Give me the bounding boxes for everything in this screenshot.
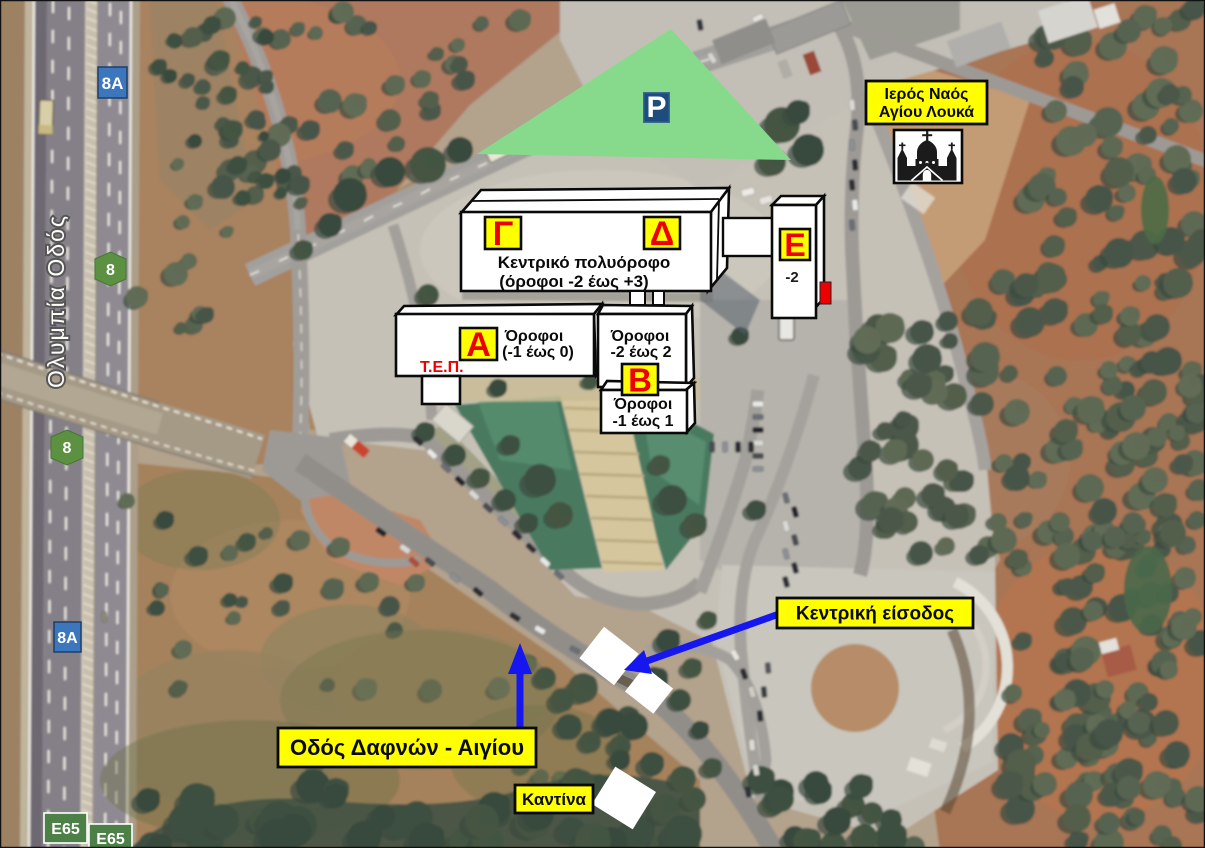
svg-text:P: P [646, 91, 666, 124]
svg-text:Κεντρική είσοδος: Κεντρική είσοδος [796, 604, 954, 625]
svg-text:8A: 8A [102, 74, 124, 93]
svg-text:Οδός Δαφνών - Αιγίου: Οδός Δαφνών - Αιγίου [290, 735, 524, 760]
svg-text:Τ.Ε.Π.: Τ.Ε.Π. [420, 359, 464, 376]
svg-text:-2 έως 2: -2 έως 2 [610, 344, 671, 361]
svg-text:-2: -2 [785, 269, 798, 286]
svg-text:-1 έως 1: -1 έως 1 [612, 413, 673, 430]
svg-text:Ολυμπία Οδός: Ολυμπία Οδός [43, 214, 69, 388]
svg-text:Καντίνα: Καντίνα [522, 790, 587, 809]
svg-text:Γ: Γ [493, 215, 513, 253]
svg-text:Α: Α [466, 326, 491, 364]
svg-text:8A: 8A [57, 630, 78, 647]
svg-text:Όροφοι: Όροφοι [610, 328, 670, 345]
svg-text:(-1 έως 0): (-1 έως 0) [502, 344, 574, 361]
svg-text:Ιερός Ναός: Ιερός Ναός [885, 86, 969, 103]
svg-text:Ε: Ε [784, 227, 805, 263]
svg-text:(όροφοι -2 έως +3): (όροφοι -2 έως +3) [499, 272, 648, 291]
svg-text:Δ: Δ [650, 215, 674, 253]
svg-text:8: 8 [106, 262, 115, 279]
svg-text:Κεντρικό πολυόροφο: Κεντρικό πολυόροφο [498, 253, 671, 272]
svg-text:8: 8 [63, 440, 72, 457]
svg-text:E65: E65 [51, 821, 80, 838]
svg-text:E65: E65 [96, 831, 125, 848]
svg-text:Β: Β [628, 361, 652, 398]
svg-text:Αγίου Λουκά: Αγίου Λουκά [879, 104, 974, 121]
svg-text:Όροφοι: Όροφοι [504, 328, 564, 345]
svg-text:Όροφοι: Όροφοι [613, 396, 673, 413]
